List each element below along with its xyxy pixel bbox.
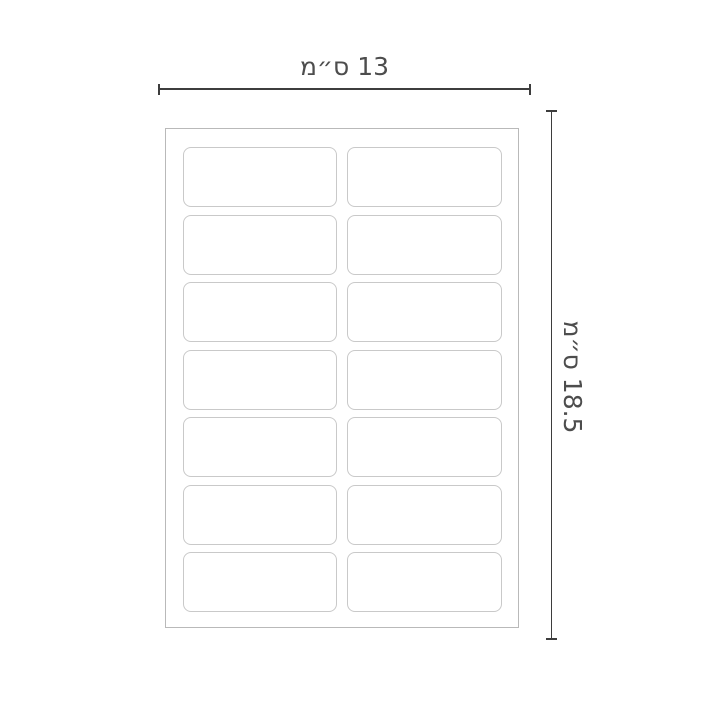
label-cell: [183, 215, 337, 275]
label-grid: [183, 147, 502, 612]
width-dimension-tick-right: [529, 84, 531, 95]
label-cell: [183, 282, 337, 342]
label-cell: [183, 485, 337, 545]
sheet-outline: [165, 128, 519, 628]
width-dimension-line: [159, 88, 530, 90]
label-cell: [183, 147, 337, 207]
label-cell: [183, 552, 337, 612]
label-cell: [347, 282, 502, 342]
label-cell: [347, 417, 502, 477]
label-cell: [347, 485, 502, 545]
height-dimension-tick-top: [546, 110, 557, 112]
width-dimension-label: 13 ס״מ: [159, 52, 530, 82]
label-cell: [347, 350, 502, 410]
label-cell: [347, 147, 502, 207]
label-cell: [347, 552, 502, 612]
height-dimension-line: [551, 111, 553, 639]
height-dimension-tick-bottom: [546, 638, 557, 640]
width-dimension-tick-left: [158, 84, 160, 95]
label-cell: [347, 215, 502, 275]
height-dimension-label: 18.5 ס״מ: [557, 321, 587, 434]
label-cell: [183, 417, 337, 477]
diagram-canvas: 13 ס״מ 18.5 ס״מ: [0, 0, 720, 720]
label-cell: [183, 350, 337, 410]
